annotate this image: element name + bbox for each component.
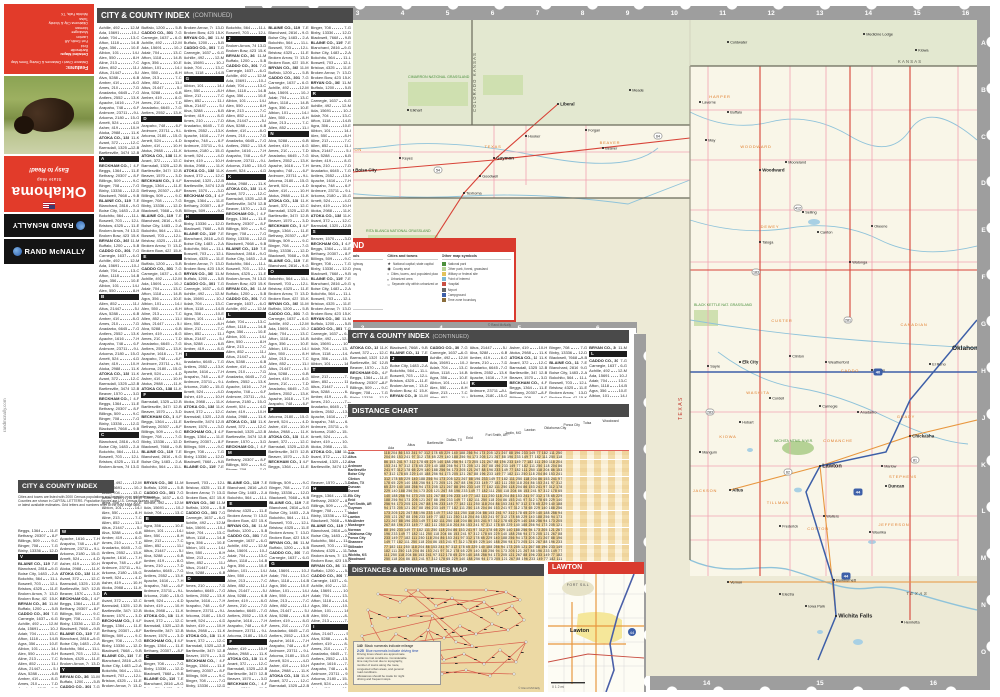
index-entry-grid: 7-G [51, 686, 58, 688]
index-entry-leader [127, 256, 131, 257]
index-entry: Barnsdall, 132512-B [311, 223, 351, 228]
index-entry-leader [335, 239, 343, 240]
index-entry-leader [166, 176, 174, 177]
index-entry-leader [335, 546, 342, 547]
index-entry-leader [210, 387, 215, 388]
index-entry-leader [255, 224, 260, 225]
label-colorado-kansas-line: COLORADO KANSAS [472, 52, 477, 112]
town-dot [739, 421, 741, 423]
index-entry-leader [298, 266, 301, 267]
cover-detailed-map-item: Wichita Falls, TX [49, 12, 88, 17]
index-entry-leader [415, 371, 419, 372]
us-route-shield-number: 183 [753, 270, 759, 274]
town-dot [857, 411, 859, 413]
index-column: ATOKA CO., 1387911-KAvant, 37212-CBarnsd… [350, 345, 388, 398]
index-entry-leader [294, 43, 300, 44]
index-entry-leader [126, 553, 132, 554]
index-entry-leader [538, 393, 540, 394]
index-entry-leader [334, 63, 342, 64]
index-entry-leader [287, 364, 301, 365]
distance-chart-panel: DISTANCE CHART AdaAltusBartlesvilleDalla… [348, 404, 629, 560]
town-dot [789, 355, 791, 357]
index-entry-leader [331, 649, 343, 650]
index-entry-name: ATOKA CO., 13879 [141, 386, 171, 391]
index-entry-leader [171, 108, 174, 109]
index-entry-leader [127, 671, 133, 672]
index-entry-grid: 11-I [461, 395, 468, 398]
index-letter-bar: J [390, 356, 428, 362]
index-entry-leader [118, 68, 132, 69]
index-entry-leader [252, 387, 259, 388]
index-entry-leader [332, 28, 343, 29]
driving-figure-mark [508, 659, 511, 660]
index-entry-name: Afton, 1118 [184, 70, 204, 75]
lawton-inset-panel: LAWTON 44 FORT SILL Lawton 0 1 2 mi [548, 562, 644, 692]
index-letter-bar: M [226, 450, 266, 456]
lawton-scale: 0 1 2 mi [552, 685, 564, 689]
county-name-label: HARPER [709, 94, 730, 99]
index-column: Altus, 214475-IAlva, 52886-BAmber, 4198-… [470, 345, 508, 398]
index-entry-leader [204, 397, 215, 398]
index-entry-leader [172, 626, 174, 627]
index-entry-leader [333, 586, 341, 587]
grid-tab-letter: L [982, 508, 986, 515]
index-entry-leader [340, 289, 343, 290]
index-entry-leader [129, 211, 132, 212]
index-entry-leader [160, 314, 174, 315]
index-entry-leader [208, 191, 216, 192]
index-entry-leader [165, 442, 172, 443]
index-entry-leader [204, 412, 215, 413]
index-entry-leader [164, 621, 174, 622]
index-entry-leader [208, 43, 217, 44]
index-entry-leader [39, 679, 50, 680]
grid-tab-letter: G [981, 321, 986, 328]
grid-tab-letter: O [981, 649, 986, 656]
us-route-shield-number: 64 [656, 134, 660, 138]
index-entry-name: Apache, 1616 [470, 375, 495, 380]
grid-tab-number: 12 [768, 10, 775, 17]
index-entry-leader [611, 371, 617, 372]
index-entry-grid: 8-G [217, 346, 224, 351]
index-entry-grid: 13-D [91, 661, 100, 666]
index-entry-name: Albion, 101 [311, 361, 331, 366]
town-label: Marlow [884, 464, 896, 468]
index-entry: Alva, 52886-B [186, 570, 226, 575]
index-entry-leader [341, 48, 344, 49]
index-entry-leader [212, 229, 216, 230]
index-entry: Antlers, 255213-K [141, 110, 181, 115]
town-dot [849, 261, 851, 263]
index-entry-leader [332, 684, 344, 685]
town-label: Elk City [742, 359, 759, 364]
website-url: randmcnally.com [2, 350, 12, 480]
index-entry-leader [125, 103, 132, 104]
index-entry-leader [291, 488, 302, 489]
county-name-label: DEWEY [761, 224, 780, 229]
distance-chart-column-city: Bartlesville [427, 441, 443, 445]
legend-item-label: National park [448, 262, 467, 266]
index-entry: Aline, 2137-C [311, 618, 351, 623]
index-entry-leader [204, 563, 217, 564]
index-entry-leader [332, 339, 341, 340]
index-entry-leader [160, 53, 172, 54]
index-entry: Buffalo, 12005-B [311, 85, 351, 90]
index-entry-leader [530, 348, 538, 349]
index-entry-leader [292, 483, 302, 484]
index-entry-leader [287, 334, 299, 335]
distance-chart-column-city: Woodward [603, 419, 619, 423]
index-entry-leader [294, 548, 302, 549]
index-entry-name: Broken Bow, 4230 [99, 469, 129, 470]
index-entry-leader [334, 249, 342, 250]
index-entry-leader [289, 103, 299, 104]
index-entry-leader [160, 83, 174, 84]
index-entry-leader [212, 442, 217, 443]
county-name-label: CUSTER [771, 318, 792, 323]
index-entry-leader [124, 98, 130, 99]
index-letter-bar: E [227, 501, 267, 507]
index-entry-leader [332, 611, 343, 612]
index-entry-leader [165, 422, 173, 423]
index-entry: Boise City, 14832-A [144, 686, 184, 688]
index-entry: Achille, 49212-M [226, 306, 266, 311]
index-entry-leader [414, 376, 419, 377]
town-dot [915, 49, 917, 51]
index-entry-leader [163, 334, 174, 335]
distance-chart-header: DISTANCE CHART [348, 404, 629, 417]
index-entry: Blanchard, 28169-G [268, 263, 308, 268]
index-letter-bar: P [268, 407, 308, 413]
index-letter-bar: K [470, 381, 508, 387]
index-entry-name: Broken Bow, 4230 [141, 248, 171, 253]
index-entry-leader [212, 289, 216, 290]
town-dot [629, 89, 631, 91]
index-entry-leader [329, 377, 343, 378]
index-entry-leader [208, 224, 215, 225]
index-entry-leader [293, 493, 299, 494]
index-entry-leader [42, 584, 49, 585]
index-entry-leader [290, 661, 302, 662]
index-entry-leader [248, 649, 258, 650]
index-entry-leader [290, 329, 300, 330]
index-letter-bar: L [589, 351, 627, 357]
index-entry-leader [287, 359, 301, 360]
index-entry-grid: 15-K [579, 395, 587, 398]
cover-features-heading: Features: [65, 64, 88, 70]
index-entry-leader [168, 636, 176, 637]
grid-tab-letter: D [981, 180, 986, 187]
index-entry-leader [249, 229, 259, 230]
driving-figure-mark [491, 608, 494, 609]
index-entry-leader [123, 221, 131, 222]
index-letter-bar: R [311, 91, 351, 97]
index-entry-leader [172, 651, 176, 652]
index-entry-leader [251, 591, 262, 592]
index-entry-leader [85, 544, 93, 545]
index-entry-leader [202, 334, 216, 335]
index-entry-leader [39, 546, 50, 547]
index-entry-grid: 6-G [302, 555, 309, 560]
index-entry-leader [332, 601, 342, 602]
index-entry-leader [203, 553, 218, 554]
driving-figure-mark [444, 602, 447, 603]
index-entry-name: BRYAN CO., 36534 [589, 345, 616, 350]
index-entry-leader [122, 309, 133, 310]
legend-item-label: Other park, forest, grassland [448, 267, 488, 271]
legend-item-label: Campground [448, 293, 466, 297]
index-entry-leader [159, 309, 174, 310]
index-entry-leader [290, 88, 299, 89]
randmcnally-globe-icon [13, 247, 22, 256]
index-entry-leader [258, 488, 260, 489]
index-entry-leader [341, 674, 345, 675]
index-entry-leader [164, 196, 174, 197]
index-letter-bar: V [18, 554, 58, 560]
index-entry-leader [340, 654, 343, 655]
index-entry-name: Adair, 704 [144, 510, 162, 515]
index-entry-leader [331, 221, 342, 222]
index-entry-name: Blackwell, 7668 [99, 426, 127, 431]
driving-city-node [431, 615, 433, 617]
index-entry-leader [337, 664, 344, 665]
cover-detailed-map-item: Enid [49, 43, 88, 48]
index-entry-leader [205, 63, 215, 64]
index-entry-leader [124, 246, 133, 247]
index-entry-name: Alex, 550 [99, 288, 116, 293]
lawton-label: Lawton [570, 628, 590, 634]
town-dot [759, 169, 761, 171]
driving-city-node [459, 625, 461, 627]
index-entry-leader [204, 558, 218, 559]
index-entry-leader [212, 53, 216, 54]
index-entry-leader [120, 43, 130, 44]
us-route-shield-number: 283 [707, 410, 713, 414]
legend-symbols-column: Other map symbols National parkOther par… [442, 254, 511, 321]
index-entry-leader [251, 294, 260, 295]
cover-detailed-map-item: Fort Smith, AR [49, 39, 88, 44]
index-entry-leader [37, 659, 51, 660]
town-dot [825, 361, 827, 363]
brand-logo-text: RAND McNALLY [13, 221, 74, 230]
index-entry-leader [286, 354, 301, 355]
index-entry-leader [332, 264, 343, 265]
legend-item: ★National capital; state capital [387, 261, 437, 266]
town-label: Kiowa [918, 48, 929, 52]
index-entry: Carnegie, 16376-G [269, 555, 309, 560]
index-entry-leader [80, 564, 90, 565]
index-entry: Broken Bow, 423015-K [549, 395, 587, 398]
index-entry-leader [81, 619, 92, 620]
index-entry-name: Antlers, 2552 [141, 110, 165, 115]
index-letter-bar: B [144, 516, 184, 522]
index-entry-leader [119, 314, 132, 315]
index-entry-leader [332, 111, 342, 112]
index-entry-grid: 13-K [173, 110, 181, 115]
index-entry-leader [170, 596, 174, 597]
town-label: May [708, 138, 715, 142]
index-entry-leader [293, 457, 301, 458]
index-entry-leader [299, 513, 302, 514]
index-entry-leader [330, 621, 344, 622]
index-entry-leader [248, 76, 257, 77]
index-entry-leader [246, 412, 257, 413]
distance-chart-values: 250 118 204 86 153 241 97 312 178 65 229… [384, 557, 629, 561]
index-entry: Atoka, 298811-K [102, 585, 142, 590]
index-entry: Allen, 85211-I [268, 125, 308, 130]
index-entry-leader [171, 344, 174, 345]
index-title: CITY & COUNTY INDEX [352, 333, 430, 340]
index-entry-leader [255, 244, 259, 245]
index-entry-leader [163, 284, 173, 285]
index-entry-leader [292, 369, 303, 370]
index-entry-leader [251, 274, 257, 275]
index-entry: Bartlesville, 3474812-B [99, 150, 139, 155]
label-rita-blanca-grassland: RITA BLANCA NATIONAL GRASSLAND [366, 229, 431, 233]
index-entry-grid: 9-G [217, 469, 224, 470]
index-entry-leader [257, 493, 260, 494]
index-entry-leader [165, 324, 176, 325]
index-entry-leader [129, 442, 132, 443]
index-entry-leader [124, 588, 132, 589]
index-entry-leader [89, 549, 93, 550]
index-entry-leader [38, 684, 50, 685]
legend-swatch [442, 298, 446, 302]
index-entry-leader [449, 368, 458, 369]
index-entry: Beaver, 15703-D [311, 480, 351, 485]
index-entry-name: Billings, 509 [509, 395, 531, 398]
label-oklahoma-city-clipped: Oklahoma City [952, 345, 977, 352]
i44-shield-number: 44 [630, 630, 635, 635]
index-entry-grid: 15-G [258, 633, 267, 638]
index-entry-leader [333, 447, 342, 448]
index-entry-name: Beggs, 1364 [227, 686, 249, 688]
index-entry-grid: 11-K [174, 386, 182, 391]
index-entry-leader [294, 528, 300, 529]
index-entry-leader [290, 146, 301, 147]
index-entry-leader [163, 43, 172, 44]
index-entry-leader [160, 299, 173, 300]
index-entry-leader [288, 191, 299, 192]
grid-tab-letter: A [981, 40, 986, 47]
index-entry-leader [123, 457, 131, 458]
index-entry-leader [288, 586, 300, 587]
index-entry-leader [491, 358, 500, 359]
index-entry: Blanchard, 28169-G [184, 469, 224, 470]
driving-city-node [471, 645, 473, 647]
index-entry-leader [332, 364, 343, 365]
legend-swatch [442, 288, 446, 292]
index-entry-leader [90, 644, 93, 645]
driving-city-node [483, 663, 485, 665]
grid-tab-letter: N [981, 602, 986, 609]
town-dot [399, 157, 401, 159]
index-entry-leader [120, 286, 131, 287]
index-entry-leader [330, 349, 342, 350]
driving-city-node [511, 605, 513, 607]
legend-swatch [442, 272, 446, 276]
driving-figure-mark [468, 630, 471, 631]
index-entry-leader [170, 274, 174, 275]
driving-city-node [515, 661, 517, 663]
town-label: Medicine Lodge [866, 32, 893, 36]
city-county-index-top-panel: CITY & COUNTY INDEX (CONTINUED) Achille,… [97, 8, 353, 472]
town-dot [779, 593, 781, 595]
town-dot [863, 33, 865, 35]
index-entry-leader [124, 452, 130, 453]
index-entry-leader [119, 379, 130, 380]
index-entry-leader [207, 106, 218, 107]
index-entry-leader [335, 176, 341, 177]
index-letter-bar: G [269, 561, 309, 567]
index-entry-leader [341, 536, 344, 537]
index-entry-leader [533, 388, 538, 389]
index-entry-leader [332, 121, 342, 122]
index-entry-leader [256, 259, 259, 260]
index-entry-leader [451, 363, 459, 364]
driving-city-node [399, 601, 401, 603]
index-entry-leader [166, 349, 172, 350]
index-entry-leader [167, 669, 173, 670]
index-entry-name: Beaver, 1570 [311, 480, 335, 485]
index-entry-grid: 8-F [178, 648, 184, 653]
index-column: Binger, 7087-GBixby, 1333612-DBlackwell,… [311, 25, 351, 470]
town-label: El Reno [932, 362, 946, 366]
index-entry-grid: 11-E [259, 686, 267, 688]
index-entry-leader [291, 621, 302, 622]
index-entry-leader [119, 143, 130, 144]
index-entry-leader [203, 68, 215, 69]
index-entry-leader [206, 626, 216, 627]
driving-figure-mark [460, 604, 463, 605]
index-entry-leader [291, 432, 300, 433]
index-entry: Billings, 5099-C [509, 395, 547, 398]
town-label: Coldwater [730, 40, 748, 44]
county-name-label: JEFFERSON [879, 522, 910, 527]
index-entry-leader [333, 644, 344, 645]
index-entry-leader [339, 581, 343, 582]
index-entry-leader [339, 101, 343, 102]
index-entry-leader [250, 239, 257, 240]
city-county-index-bottom-panel: CITY & COUNTY INDEX Cities and towns are… [16, 476, 353, 692]
index-entry-leader [132, 661, 134, 662]
index-entry-leader [206, 211, 216, 212]
index-entry-leader [165, 664, 176, 665]
index-entry-leader [122, 601, 132, 602]
index-entry-leader [205, 533, 216, 534]
grid-tab-number: 7 [536, 10, 540, 17]
index-entry-leader [206, 641, 216, 642]
index-entry-leader [534, 378, 540, 379]
index-entry: CADDO CO., 301507-G [60, 684, 100, 688]
index-entry-leader [123, 641, 134, 642]
label-texas-southeast: TEXAS [906, 591, 928, 596]
driving-city-node [427, 629, 429, 631]
town-label: Woodward [762, 167, 785, 172]
index-entry-name: Carnegie, 1637 [269, 555, 296, 560]
county-name-label: TILLMAN [767, 500, 790, 505]
index-entry-leader [244, 106, 259, 107]
index-entry-leader [47, 536, 51, 537]
driving-figure-mark [398, 617, 401, 618]
index-entry-leader [124, 216, 130, 217]
lawton-inset-map: 44 FORT SILL Lawton 0 1 2 mi [548, 574, 644, 692]
us-route-shield-number: 281 [845, 318, 851, 322]
index-entry-leader [290, 324, 299, 325]
town-dot [871, 225, 873, 227]
index-entry-grid: 7-G [260, 467, 267, 470]
town-label: Cordell [772, 396, 784, 400]
